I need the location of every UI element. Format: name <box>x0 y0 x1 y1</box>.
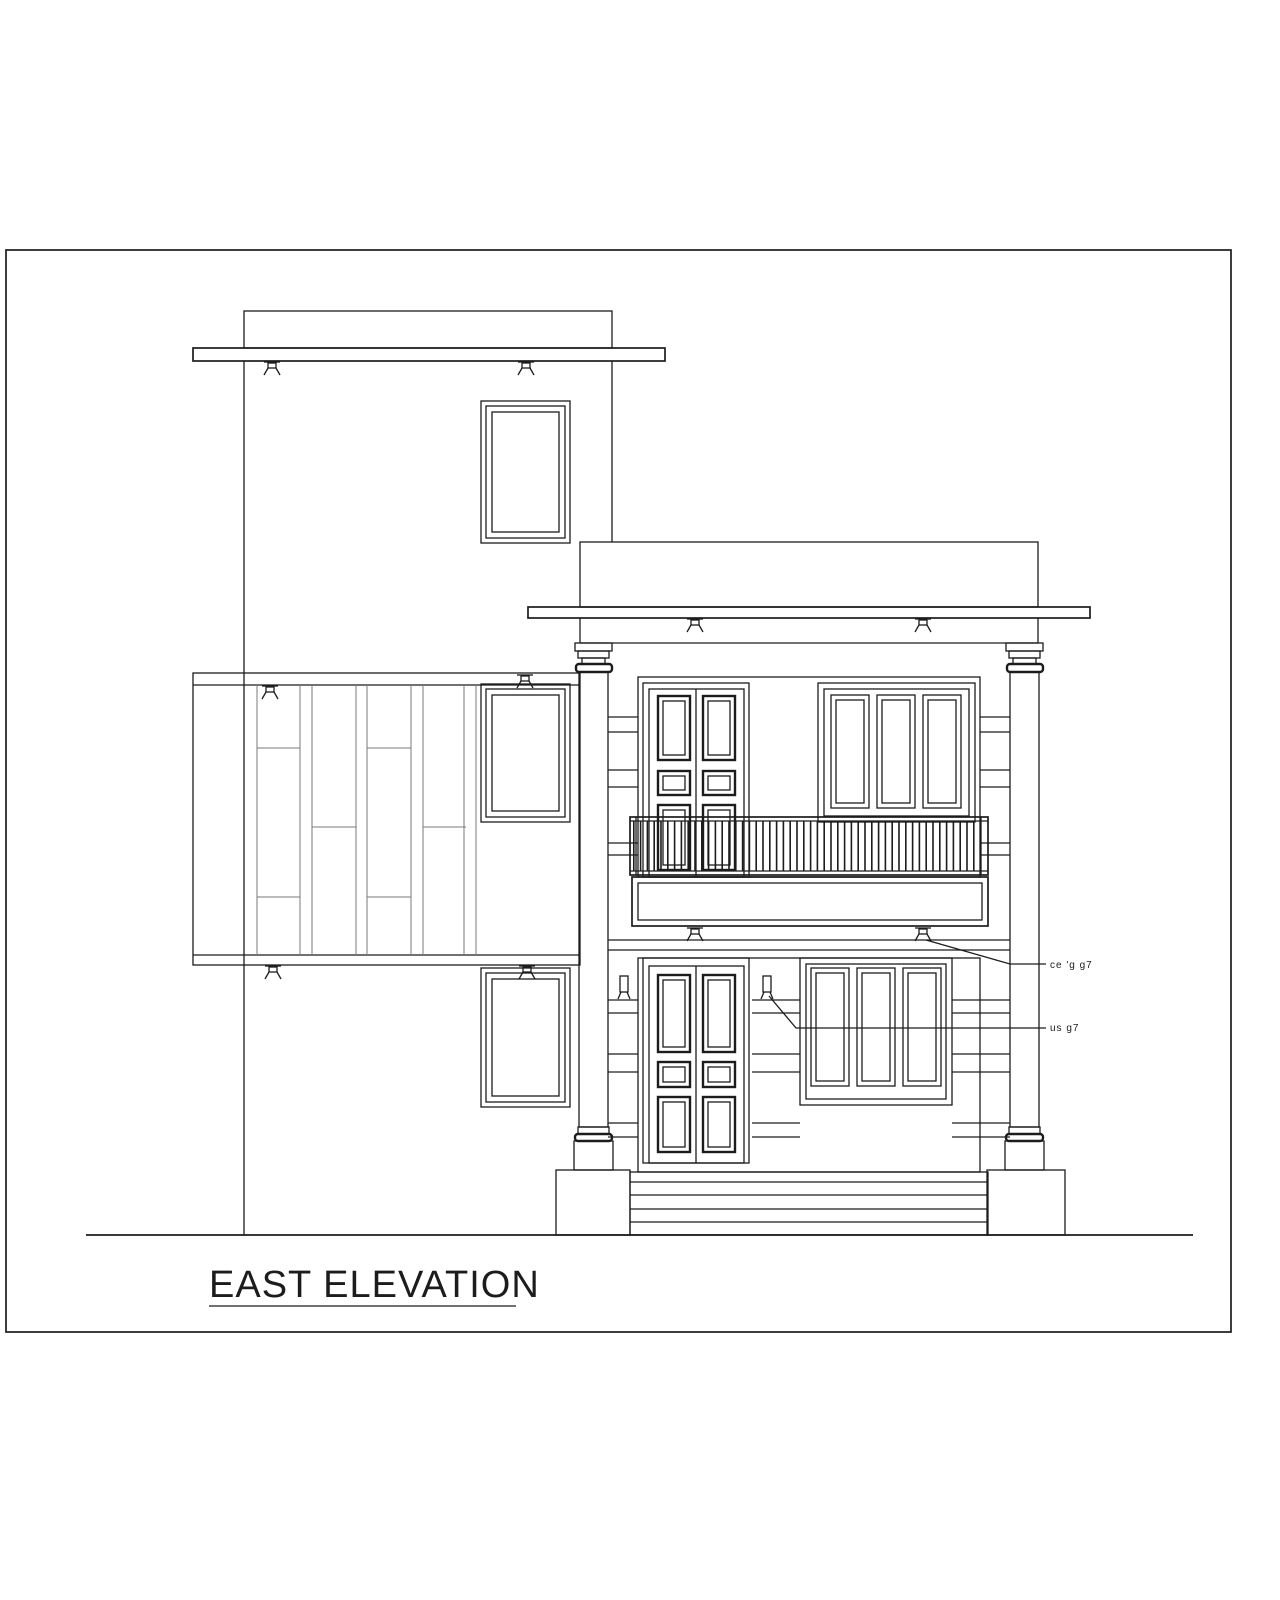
balcony-slab <box>632 877 988 941</box>
window-light <box>877 695 915 808</box>
slab-anchor-mark <box>915 619 931 632</box>
drawing-sheet: { "sheet": { "background": "#ffffff", "l… <box>0 0 1280 1600</box>
upper-window <box>818 683 975 822</box>
slab-anchor-mark <box>687 928 703 941</box>
lower-wall-lines <box>608 940 1010 950</box>
window-light <box>903 968 941 1086</box>
window-frame <box>800 958 952 1105</box>
railing-outline <box>630 817 988 875</box>
door-panel <box>658 1062 690 1087</box>
window-light <box>831 695 869 808</box>
door-panel <box>703 975 735 1052</box>
east-elevation-drawing: ce 'g g7 us g7 EAST ELEVATION <box>0 0 1280 1600</box>
stair-screen-panel <box>193 673 580 979</box>
wall-light-icon <box>618 976 630 999</box>
tower-window-top <box>481 401 570 543</box>
tower-window-bottom <box>481 968 570 1107</box>
door-panel <box>658 1097 690 1152</box>
tower-roof-slab <box>193 348 665 361</box>
tower-parapet <box>244 311 612 348</box>
upper-door <box>643 683 749 877</box>
door-panel <box>703 1097 735 1152</box>
tower-window-middle <box>481 684 570 822</box>
slab-anchor-mark <box>264 362 280 375</box>
door-panel <box>703 1062 735 1087</box>
main-floor-slab <box>528 607 1090 643</box>
door-panel <box>703 771 735 795</box>
door-panel <box>658 771 690 795</box>
slab-anchor-mark <box>915 928 931 941</box>
annotation-lower: us g7 <box>1050 1023 1079 1034</box>
annotation-upper: ce 'g g7 <box>1050 960 1093 971</box>
drawing-title: EAST ELEVATION <box>209 1264 540 1306</box>
column-pedestal <box>556 1170 630 1235</box>
panel-anchor-mark <box>265 966 281 979</box>
column-capital <box>1006 643 1043 651</box>
entrance-steps <box>630 1172 988 1235</box>
entrance-door <box>643 958 749 1163</box>
balcony-railing <box>630 817 988 875</box>
lower-window <box>800 958 952 1105</box>
window-light <box>923 695 961 808</box>
column-shaft <box>579 672 608 1127</box>
slab-anchor-mark <box>687 619 703 632</box>
window-light <box>811 968 849 1086</box>
panel-anchor-mark <box>262 686 278 699</box>
window-frame <box>818 683 975 822</box>
column-pedestal <box>987 1170 1065 1235</box>
wall-light-icon <box>761 976 773 999</box>
leader-upper <box>926 940 1046 964</box>
window-light <box>857 968 895 1086</box>
door-panel <box>658 975 690 1052</box>
panel-anchor-mark <box>517 675 533 688</box>
door-panel <box>658 696 690 760</box>
door-panel <box>703 696 735 760</box>
stair-tower <box>193 311 665 1235</box>
title-block: EAST ELEVATION <box>209 1264 540 1306</box>
column-shaft <box>1010 672 1039 1127</box>
slab-anchor-mark <box>518 362 534 375</box>
main-parapet-block <box>580 542 1038 607</box>
column-capital <box>575 643 612 651</box>
lower-wall-bands <box>608 1000 1010 1137</box>
